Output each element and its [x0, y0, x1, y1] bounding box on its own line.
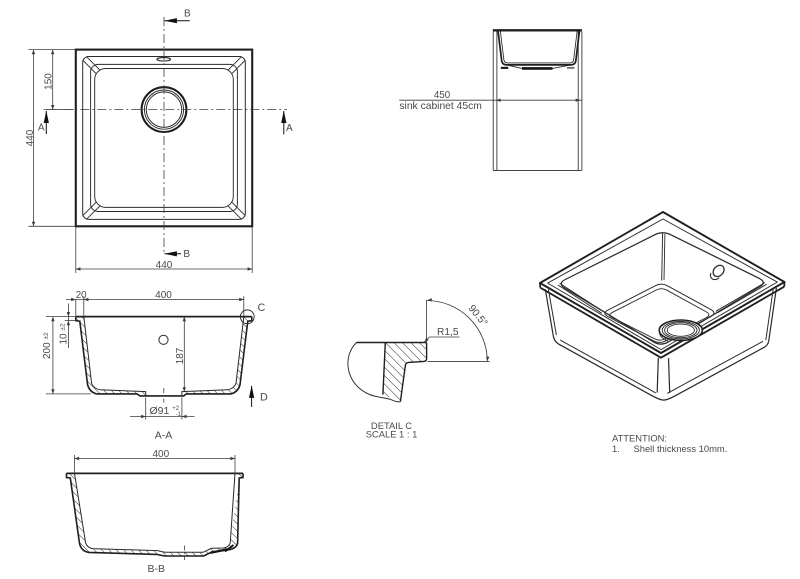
- svg-text:B: B: [184, 8, 191, 19]
- svg-text:ATTENTION:: ATTENTION:: [612, 432, 667, 443]
- svg-text:-1: -1: [176, 412, 182, 418]
- svg-text:187: 187: [175, 347, 186, 364]
- svg-text:R1,5: R1,5: [437, 327, 459, 338]
- svg-text:1.: 1.: [612, 443, 620, 454]
- svg-text:A: A: [38, 123, 45, 134]
- svg-text:400: 400: [152, 449, 169, 460]
- svg-text:C: C: [258, 302, 266, 314]
- svg-text:150: 150: [43, 73, 54, 90]
- svg-text:440: 440: [156, 260, 173, 271]
- svg-text:440: 440: [25, 129, 36, 146]
- svg-text:B-B: B-B: [148, 563, 166, 575]
- svg-text:20: 20: [76, 290, 87, 301]
- svg-text:SCALE 1 : 1: SCALE 1 : 1: [366, 429, 418, 440]
- svg-text:Shell thickness 10mm.: Shell thickness 10mm.: [634, 443, 728, 454]
- svg-text:450: 450: [434, 90, 451, 101]
- svg-text:400: 400: [155, 290, 172, 301]
- svg-text:A-A: A-A: [155, 430, 173, 442]
- svg-text:sink cabinet 45cm: sink cabinet 45cm: [399, 101, 481, 112]
- svg-text:B: B: [183, 249, 190, 260]
- svg-text:A: A: [286, 123, 293, 134]
- svg-text:D: D: [260, 392, 268, 404]
